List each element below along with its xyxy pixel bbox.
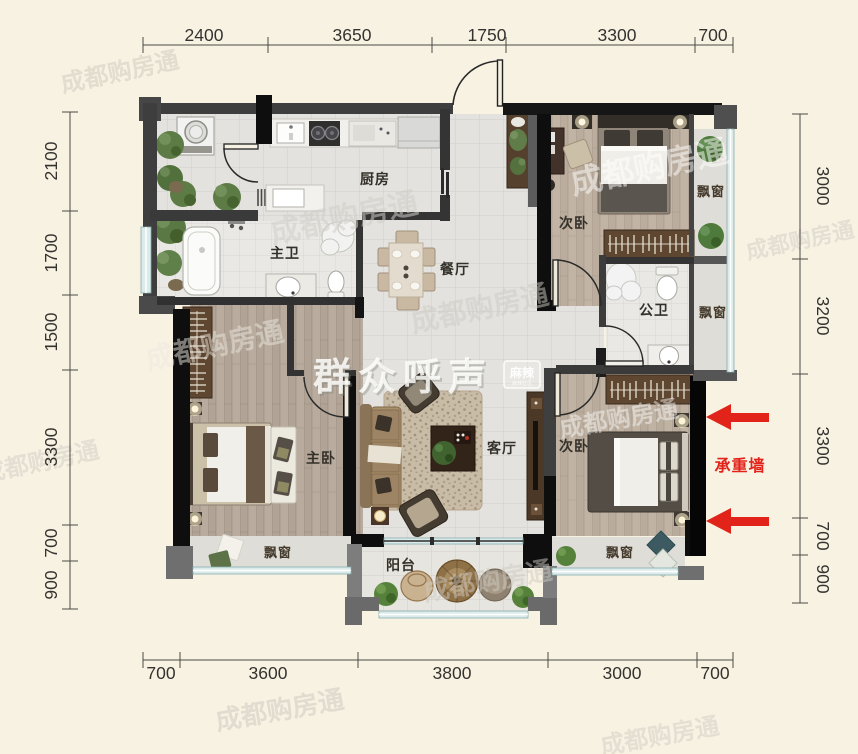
svg-text:3300: 3300 (41, 427, 61, 466)
svg-text:3000: 3000 (603, 663, 642, 683)
svg-text:700: 700 (700, 663, 729, 683)
svg-text:1500: 1500 (41, 312, 61, 351)
svg-text:1750: 1750 (468, 25, 507, 45)
svg-text:飘窗: 飘窗 (699, 305, 727, 320)
svg-text:3300: 3300 (813, 427, 833, 466)
svg-text:700: 700 (41, 528, 61, 557)
svg-text:承重墙: 承重墙 (714, 456, 765, 475)
svg-text:700: 700 (146, 663, 175, 683)
svg-text:1700: 1700 (41, 233, 61, 272)
svg-text:700: 700 (813, 521, 833, 550)
svg-text:客厅: 客厅 (486, 440, 517, 456)
svg-text:2100: 2100 (41, 141, 61, 180)
svg-text:700: 700 (698, 25, 727, 45)
svg-text:群众呼声: 群众呼声 (313, 357, 493, 399)
svg-text:阳台: 阳台 (386, 557, 416, 573)
svg-text:900: 900 (41, 570, 61, 599)
svg-text:餐厅: 餐厅 (439, 261, 470, 277)
svg-text:公卫: 公卫 (639, 302, 669, 318)
svg-text:次卧: 次卧 (559, 215, 589, 231)
svg-text:飘窗: 飘窗 (264, 545, 292, 560)
svg-text:麻辣社区: 麻辣社区 (512, 380, 532, 387)
svg-text:2400: 2400 (185, 25, 224, 45)
svg-text:飘窗: 飘窗 (697, 184, 725, 199)
svg-text:3200: 3200 (813, 297, 833, 336)
svg-text:主卧: 主卧 (306, 450, 336, 466)
svg-text:厨房: 厨房 (360, 171, 390, 187)
svg-text:3800: 3800 (433, 663, 472, 683)
svg-text:900: 900 (813, 564, 833, 593)
svg-text:飘窗: 飘窗 (606, 545, 634, 560)
svg-text:3300: 3300 (598, 25, 637, 45)
svg-text:3650: 3650 (333, 25, 372, 45)
svg-text:3000: 3000 (813, 167, 833, 206)
svg-text:3600: 3600 (249, 663, 288, 683)
svg-text:麻辣: 麻辣 (509, 365, 535, 380)
